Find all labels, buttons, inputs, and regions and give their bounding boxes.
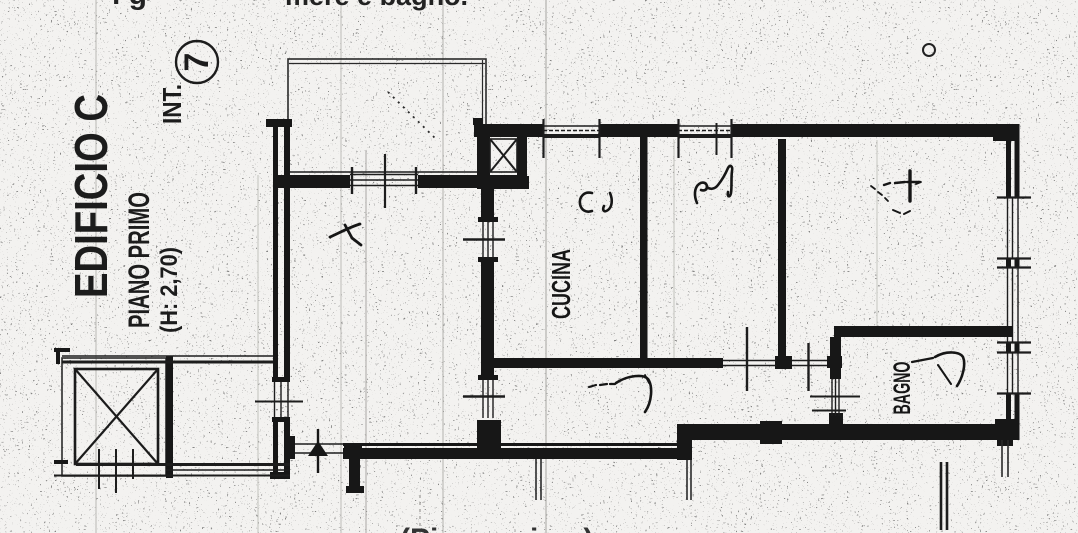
svg-text:BAGNO: BAGNO <box>889 362 916 415</box>
svg-text:PIANO PRIMO: PIANO PRIMO <box>123 192 156 328</box>
svg-text:(H: 2,70): (H: 2,70) <box>156 247 183 333</box>
svg-text:CUCINA: CUCINA <box>546 249 576 319</box>
svg-text:INT.: INT. <box>157 84 187 124</box>
svg-text:mere e bagno.: mere e bagno. <box>285 0 468 11</box>
svg-text:7: 7 <box>178 53 216 72</box>
svg-text:(Piano primo): (Piano primo) <box>400 523 593 533</box>
svg-text:EDIFICIO C: EDIFICIO C <box>65 94 117 298</box>
svg-text:l g: l g <box>112 0 147 11</box>
